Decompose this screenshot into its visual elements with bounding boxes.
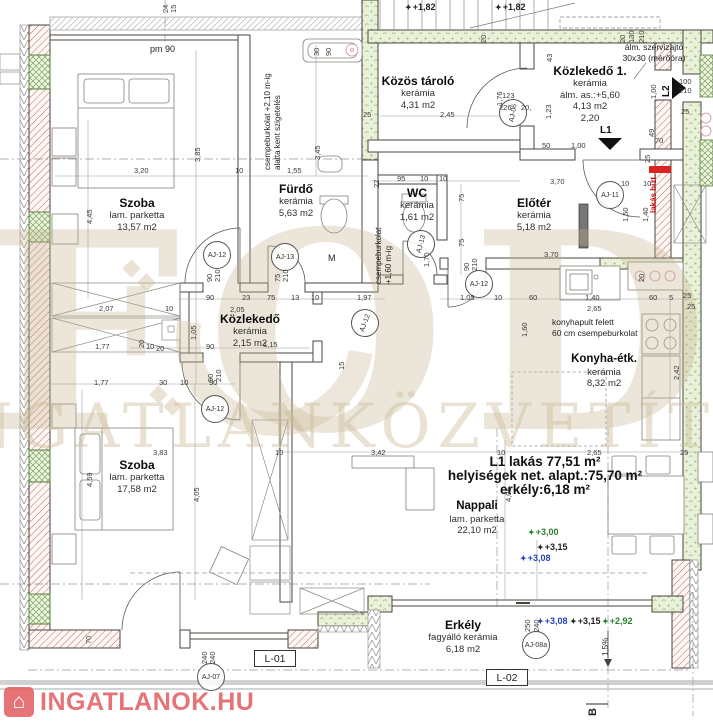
dimension-label: 4,05: [192, 487, 201, 502]
dimension-label: 3,83: [153, 448, 168, 457]
note-tiling-wc: csempeburkolat +1,60 m-ig: [374, 228, 394, 284]
dimension-label: 210: [637, 30, 646, 43]
door-tag: AJ-11: [596, 181, 624, 209]
room-finish: kerámia: [363, 88, 473, 99]
floor-plan-page: { "title": "L1 lakás alaprajz", "summary…: [0, 0, 713, 721]
dimension-label: 2,07: [99, 304, 114, 313]
room-name: WC: [362, 186, 472, 200]
dimension-label: 10: [180, 378, 188, 387]
note-line: +1,60 m-ig: [384, 228, 394, 284]
room-label-konyha: Konyha-étk. kerámia 8,32 m2: [549, 353, 659, 390]
room-finish: kerámia: [362, 200, 472, 211]
door-tag: AJ-12: [203, 241, 231, 269]
door-tag: AJ-08a: [522, 631, 550, 659]
dimension-label: 2,65: [587, 304, 602, 313]
dimension-label: 90: [206, 342, 214, 351]
room-name: Közlekedő 1.: [535, 64, 645, 78]
dimension-label: 15: [337, 362, 346, 370]
lintel-l1-label: L1: [600, 125, 612, 136]
level-value: +1,82: [503, 2, 526, 12]
level-star-icon: ✦: [528, 528, 535, 537]
note-kitchen-tiling: konyhapult felett 60 cm csempeburkolat: [552, 317, 638, 338]
dimension-label: 210: [213, 269, 222, 282]
room-area: 1,61 m2: [362, 212, 472, 223]
summary-total-area: L1 lakás 77,51 m²: [420, 455, 670, 469]
dimension-label: 1,40: [641, 207, 650, 222]
level-value: +3,15: [545, 542, 568, 552]
note-line: konyhapult felett: [552, 317, 638, 328]
dimension-label: 15: [169, 5, 178, 13]
elevation-marker: ✦+3,15: [537, 542, 567, 552]
elevation-marker: ✦+3,08: [520, 553, 550, 563]
dimension-label: 43: [545, 54, 554, 62]
level-star-icon: ✦: [520, 554, 527, 563]
room-area: 13,57 m2: [82, 222, 192, 233]
level-value: +3,08: [545, 616, 568, 626]
dimension-label: 20: [479, 35, 488, 43]
dimension-label: 1,15: [263, 340, 278, 349]
elevation-marker: ✦+3,15: [570, 616, 600, 626]
dimension-label: 5: [669, 293, 673, 302]
dimension-label: 30: [312, 48, 321, 56]
dimension-label: 1,77: [95, 342, 110, 351]
dimension-label: 100: [679, 77, 692, 86]
dimension-label: 2,05: [230, 305, 245, 314]
room-note: álm. as.:+5,60: [535, 90, 645, 101]
dimension-label: 240: [208, 651, 217, 664]
note-line: 60 cm csempeburkolat: [552, 328, 638, 339]
elevation-marker: ✦+3,08: [537, 616, 567, 626]
dimension-label: 25: [680, 448, 688, 457]
door-tag: AJ-12: [201, 395, 229, 423]
note-line: 30x30 (mérőóra): [596, 53, 712, 64]
dimension-label: 250: [523, 619, 532, 632]
dimension-label: 1,05: [460, 293, 475, 302]
room-finish: kerámia: [479, 210, 589, 221]
level-star-icon: ✦: [405, 3, 412, 12]
room-finish: kerámia: [535, 78, 645, 89]
lintel-l2-label: L2: [661, 85, 672, 97]
dimension-label: 25: [681, 107, 689, 116]
dimension-label: 130: [627, 30, 636, 43]
room-finish: lam. parketta: [422, 514, 532, 525]
dimension-label: 2,65: [587, 448, 602, 457]
ingatlanok-logo: ⌂ INGATLANOK.HU: [4, 687, 254, 717]
dimension-label: 22: [372, 180, 381, 188]
dimension-label: 1,40: [585, 293, 600, 302]
level-star-icon: ✦: [570, 617, 577, 626]
lintel-l02-box: L-02: [486, 669, 528, 686]
dimension-label: 90: [324, 48, 333, 56]
dimension-label: 1,00: [571, 141, 586, 150]
note-parapet: pm 90: [150, 44, 175, 55]
note-slope: 1,5%: [601, 638, 611, 656]
note-line: csempeburkolat: [374, 228, 384, 284]
room-area: 5,63 m2: [241, 208, 351, 219]
dimension-label: 4,05: [504, 487, 513, 502]
dimension-label: 75: [267, 293, 275, 302]
dimension-label: 10: [494, 293, 502, 302]
dimension-label: 1,05: [189, 325, 198, 340]
dimension-label: 1,60: [520, 322, 529, 337]
dimension-label: 10: [497, 448, 505, 457]
room-finish: fagyálló kerámia: [408, 632, 518, 643]
dimension-label: 25: [643, 155, 652, 163]
dimension-label: 20,: [521, 103, 531, 112]
dimension-label: 123: [502, 91, 515, 100]
dimension-label: 3,20: [134, 166, 149, 175]
room-area: 8,32 m2: [549, 378, 659, 389]
dimension-label: 20: [137, 340, 146, 348]
dimension-label: 1,77: [94, 378, 109, 387]
dimension-label: 70: [84, 636, 93, 644]
room-name: Előtér: [479, 196, 589, 210]
dimension-label: 25: [683, 291, 691, 300]
dimension-label: 3,70: [544, 250, 559, 259]
dimension-label: 1,50: [621, 207, 630, 222]
level-value: +1,82: [413, 2, 436, 12]
dimension-label: 1,97: [357, 293, 372, 302]
section-b-label: B: [587, 708, 601, 716]
room-finish: lam. parketta: [82, 472, 192, 483]
dimension-label: 90: [206, 293, 214, 302]
room-area: 17,58 m2: [82, 484, 192, 495]
dimension-label: 95: [397, 174, 405, 183]
level-value: +3,08: [528, 553, 551, 563]
room-label-erkely: Erkély fagyálló kerámia 6,18 m2: [408, 618, 518, 655]
elevation-marker: ✦+1,82: [495, 2, 525, 12]
dimension-label: 10: [235, 166, 243, 175]
dimension-label: 1,23: [544, 104, 553, 119]
level-star-icon: ✦: [537, 543, 544, 552]
dimension-label: 23: [242, 293, 250, 302]
dimension-label: 75: [457, 194, 466, 202]
room-finish: kerámia: [549, 367, 659, 378]
dimension-label: 2,42: [672, 365, 681, 380]
dimension-label: 60: [529, 293, 537, 302]
room-name: Fürdő: [241, 182, 351, 196]
dimension-label: 50: [542, 141, 550, 150]
dimension-label: 3,85: [193, 147, 202, 162]
slab-edge-band: [0, 680, 713, 685]
room-name: Közlekedő: [195, 312, 305, 326]
room-finish: lam. parketta: [82, 210, 192, 221]
dimension-label: 226: [499, 103, 512, 112]
room-label-szoba1: Szoba lam. parketta 13,57 m2: [82, 196, 192, 233]
dimension-label: 210: [470, 258, 479, 271]
room-label-tarolo: Közös tároló kerámia 4,31 m2: [363, 74, 473, 111]
room-name: Nappali: [422, 500, 532, 514]
dimension-label: 10: [311, 293, 319, 302]
room-name: Szoba: [82, 458, 192, 472]
dimension-label: 25: [363, 110, 371, 119]
dimension-label: 3,45: [313, 145, 322, 160]
elevation-marker: ✦+3,00: [528, 527, 558, 537]
room-finish: kerámia: [195, 326, 305, 337]
room-name: Közös tároló: [363, 74, 473, 88]
room-area: 22,10 m2: [422, 525, 532, 536]
dimension-label: 20: [156, 344, 164, 353]
dimension-label: 70: [655, 136, 663, 145]
dimension-label: 60: [649, 293, 657, 302]
dimension-label: 20: [618, 35, 627, 43]
dimension-label: 210: [281, 269, 290, 282]
dimension-label: 10: [165, 304, 173, 313]
summary-balcony-area: erkély:6,18 m²: [420, 483, 670, 497]
room-name: Erkély: [408, 618, 518, 632]
room-area: 4,31 m2: [363, 100, 473, 111]
level-value: +3,15: [578, 616, 601, 626]
level-star-icon: ✦: [495, 3, 502, 12]
room-label-wc: WC kerámia 1,61 m2: [362, 186, 472, 223]
dimension-label: 240: [532, 619, 541, 632]
dimension-label: 20: [637, 274, 646, 282]
door-tag: AJ-13: [271, 243, 299, 271]
dimension-label: 13: [291, 293, 299, 302]
lintel-l01-box: L-01: [254, 650, 296, 667]
dimension-label: 1,55: [287, 166, 302, 175]
note-service-door: álm. szervizajtó 30x30 (mérőóra): [596, 42, 712, 63]
dimension-label: 3,42: [371, 448, 386, 457]
note-line: csempeburkolat +2,10 m-ig: [263, 73, 273, 170]
room-name: Szoba: [82, 196, 192, 210]
dimension-label: 2,45: [440, 110, 455, 119]
elevation-marker: ✦+1,82: [405, 2, 435, 12]
summary-net-area: helyiségek net. alapt.:75,70 m²: [420, 469, 670, 483]
house-icon: ⌂: [4, 687, 34, 717]
elevation-marker: ✦+2,92: [602, 616, 632, 626]
dimension-label: 25: [687, 302, 695, 311]
dimension-label: 10: [275, 448, 283, 457]
dimension-label: 10: [146, 342, 154, 351]
room-name: Konyha-étk.: [549, 353, 659, 367]
logo-text: INGATLANOK.HU: [40, 688, 254, 717]
dimension-label: 1,70: [422, 252, 431, 267]
note-m: M: [328, 253, 336, 264]
dimension-label: 210: [679, 86, 692, 95]
note-line: alatta kent szigetelés: [273, 73, 283, 170]
dimension-label: 90: [209, 378, 217, 387]
note-tiling-bath: csempeburkolat +2,10 m-ig alatta kent sz…: [263, 73, 283, 170]
room-label-furdo: Fürdő kerámia 5,63 m2: [241, 182, 351, 219]
dimension-label: 4,45: [85, 209, 94, 224]
room-label-nappali: Nappali lam. parketta 22,10 m2: [422, 500, 532, 537]
room-finish: kerámia: [241, 196, 351, 207]
dimension-label: 10: [643, 179, 651, 188]
dimension-label: 10: [420, 174, 428, 183]
room-label-eloter: Előtér kerámia 5,18 m2: [479, 196, 589, 233]
dimension-label: 3,70: [550, 177, 565, 186]
room-label-szoba2: Szoba lam. parketta 17,58 m2: [82, 458, 192, 495]
level-star-icon: ✦: [602, 617, 609, 626]
note-line: álm. szervizajtó: [596, 42, 712, 53]
room-area: 6,18 m2: [408, 644, 518, 655]
dimension-label: 10: [621, 179, 629, 188]
dimension-label: 1,00: [649, 84, 658, 99]
room-area: 5,18 m2: [479, 222, 589, 233]
dimension-label: 75: [457, 239, 466, 247]
apartment-summary: L1 lakás 77,51 m² helyiségek net. alapt.…: [420, 455, 670, 498]
level-value: +3,00: [536, 527, 559, 537]
dimension-label: 30: [159, 378, 167, 387]
dimension-label: 10: [439, 174, 447, 183]
level-value: +2,92: [610, 616, 633, 626]
dimension-label: 4,59: [85, 472, 94, 487]
